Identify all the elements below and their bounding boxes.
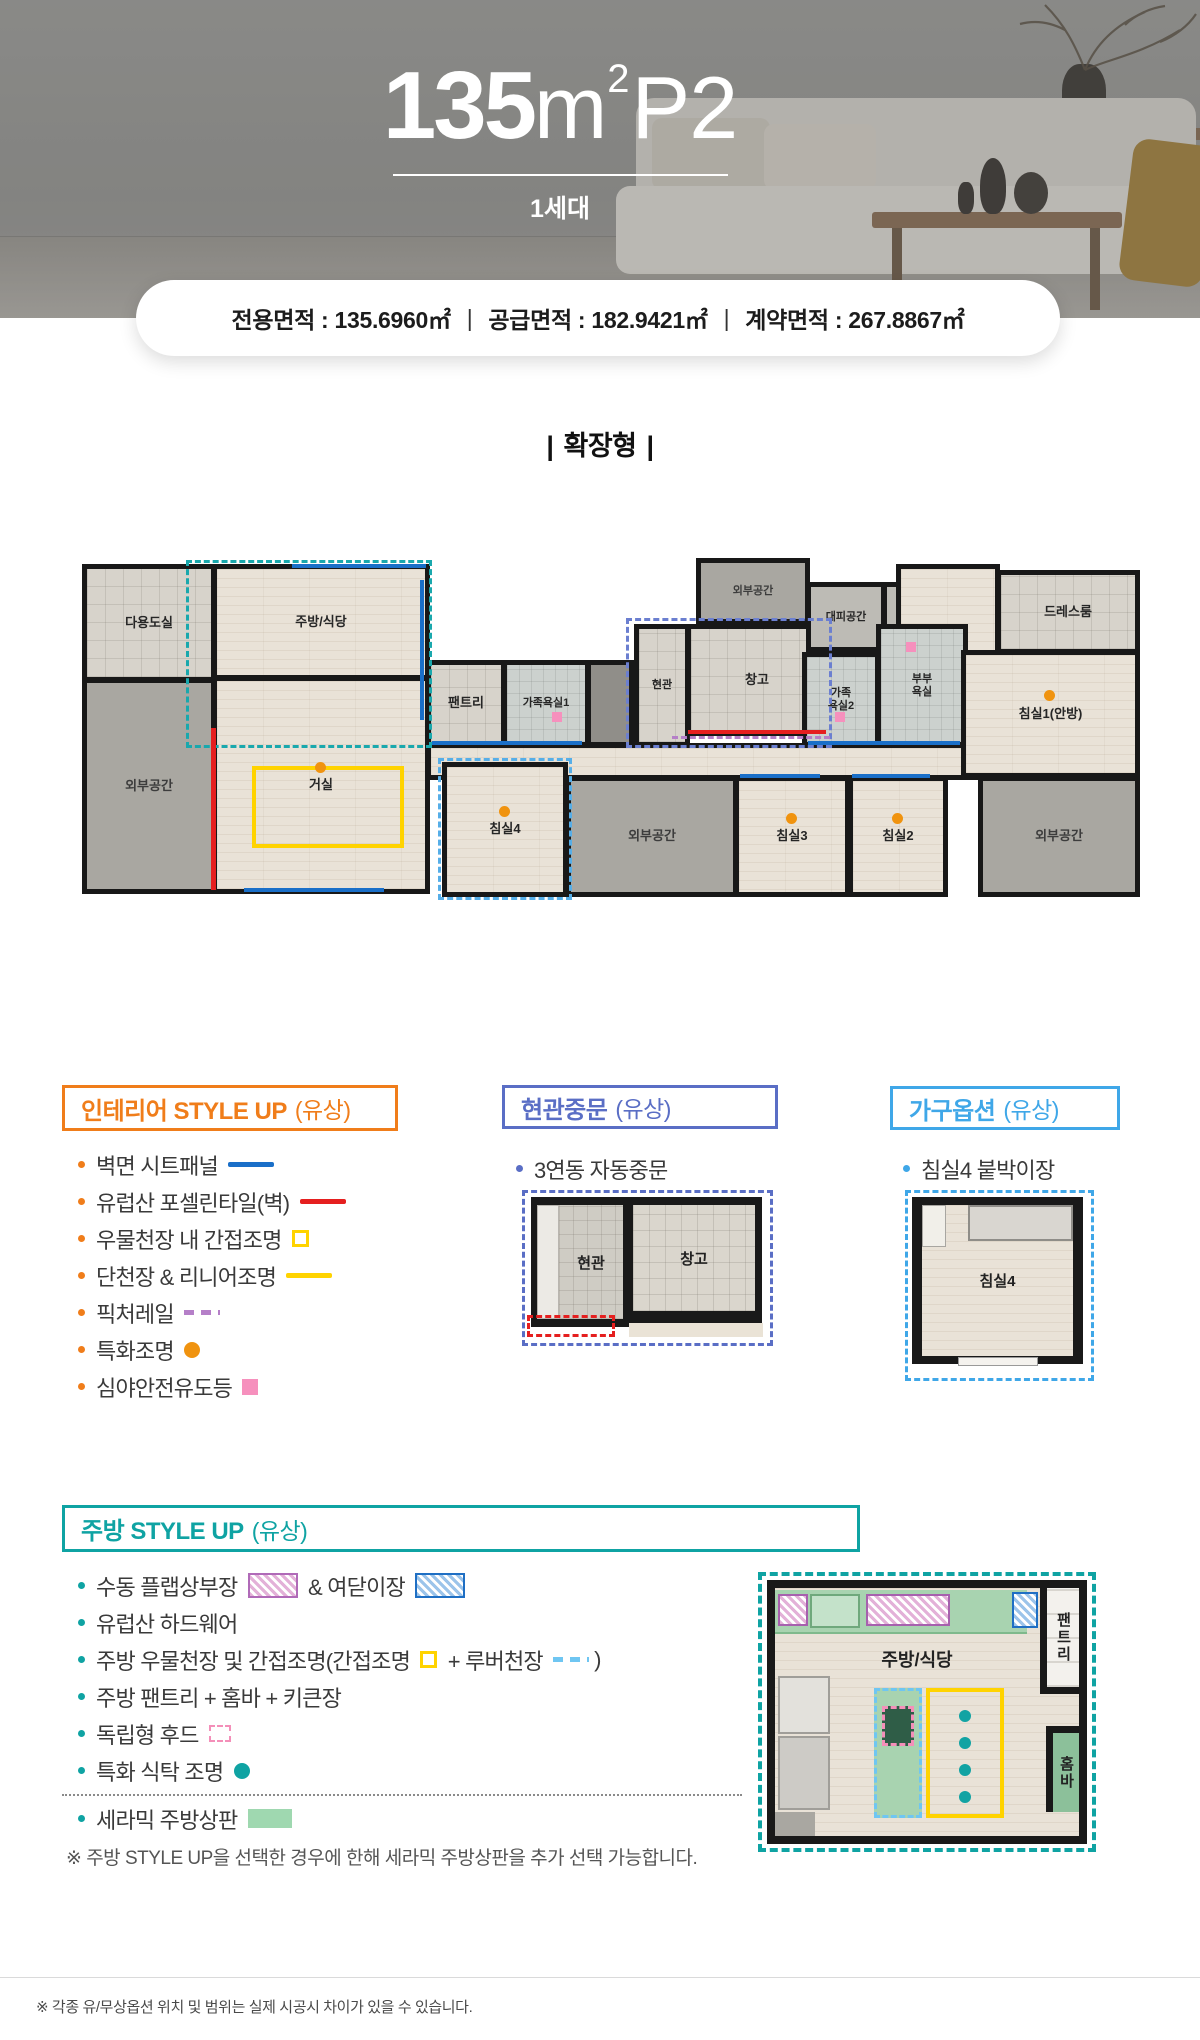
bullet-icon [903,1165,910,1172]
unit-size: 135 [383,52,534,159]
legend-swatch-sq-outline [420,1651,437,1668]
floorplan: 다용도실외부공간주방/식당거실팬트리가족욕실1현관창고외부공간대피공간실외기실부… [60,560,1140,900]
legend-text: & 여닫이장 [303,1570,411,1602]
legend-item: 특화조명 [78,1331,351,1368]
legend-text: 주방 팬트리 + 홈바 + 키큰장 [96,1681,341,1713]
room-bedroom3: 침실3 [736,778,848,895]
legend-swatch-sq-outline [292,1230,309,1247]
legend-door: 3연동 자동중문 [516,1150,667,1187]
unit-unit: m [534,58,605,157]
legend-item: 침실4 붙박이장 [903,1150,1054,1187]
room-dressroom-label: 드레스룸 [1044,605,1092,620]
bullet-icon [516,1165,523,1172]
room-bedroom3-label: 침실3 [776,829,807,844]
legend-swatch-circle [234,1763,250,1779]
mini-storage-room: 창고 [633,1205,755,1311]
room-entry: 현관 [636,626,688,745]
room-familybath1-label: 가족욕실1 [523,697,570,710]
section-title-paren: (유상) [615,1090,671,1124]
legend-item: 심야안전유도등 [78,1368,351,1405]
legend-item: 우물천장 내 간접조명 [78,1220,351,1257]
hinged-cabinet-swatch [1012,1592,1038,1628]
section-header-kitchen: 주방 STYLE UP (유상) [62,1505,860,1552]
legend-item: 수동 플랩상부장 & 여닫이장 [78,1567,601,1604]
dining-light-dot [959,1791,971,1803]
auto-door-position-marker [527,1315,615,1337]
room-shelter: 대피공간 [808,584,884,650]
household-count: 1세대 [0,189,1120,225]
area-item: 전용면적 : 135.6960㎡ [231,301,450,335]
mini-bedroom4-label: 침실4 [980,1270,1016,1291]
kitchen-refrigerator [778,1736,830,1810]
bullet-icon [78,1198,85,1205]
section-title-paren: (유상) [295,1091,351,1125]
bullet-icon [78,1161,85,1168]
room-bedroom4-label: 침실4 [489,822,520,837]
room-living-label: 거실 [309,778,333,793]
section-header-door: 현관중문 (유상) [502,1085,778,1129]
room-entry-label: 현관 [652,679,672,692]
legend-item: 유럽산 포셀린타일(벽) [78,1183,351,1220]
legend-text: 단천장 & 리니어조명 [96,1260,281,1292]
legend-text: 주방 우물천장 및 간접조명(간접조명 [96,1644,415,1676]
unit-title: 135m2P2 [0,58,1120,154]
mini-entry-room: 현관 [559,1205,623,1319]
room-kitchen-label: 주방/식당 [295,615,346,630]
legend-item: 픽처레일 [78,1294,351,1331]
legend-text: 세라믹 주방상판 [96,1803,243,1835]
room-familybath1: 가족욕실1 [504,662,588,745]
section-title: 현관중문 [521,1090,607,1125]
legend-swatch-line [286,1273,332,1278]
room-bedroom2-label: 침실2 [882,829,913,844]
miniplan-entry-door: 현관 창고 [522,1190,773,1346]
miniplan-kitchen: 팬트리 홈바 주방/식당 [758,1572,1096,1852]
bullet-icon [78,1767,85,1774]
room-bedroom1: 침실1(안방) [963,652,1138,776]
legend-text: 수동 플랩상부장 [96,1570,243,1602]
legend-swatch-rect [248,1809,292,1828]
legend-item: 주방 우물천장 및 간접조명(간접조명 + 루버천장 ) [78,1641,601,1678]
bullet-icon [78,1272,85,1279]
section-title: 주방 STYLE UP [81,1511,244,1546]
footer-divider [0,1977,1200,1978]
bullet-icon [78,1383,85,1390]
legend-text: 3연동 자동중문 [534,1153,667,1185]
independent-hood-marker [882,1706,914,1746]
legend-swatch-dashes [553,1657,589,1662]
dining-light-dot [959,1737,971,1749]
flap-cabinet-swatch [866,1594,950,1626]
legend-text: 우물천장 내 간접조명 [96,1223,287,1255]
room-bedroom1-label: 침실1(안방) [1019,707,1083,722]
legend-swatch-hatch [415,1573,465,1598]
legend-text: 유럽산 하드웨어 [96,1607,237,1639]
shoe-cabinet [537,1205,559,1319]
brochure-page: 135m2P2 1세대 전용면적 : 135.6960㎡|공급면적 : 182.… [0,0,1200,2040]
room-familybath2-label: 가족 욕실2 [828,687,854,712]
heading-bar: | [647,431,654,461]
section-title-paren: (유상) [1003,1091,1059,1125]
legend-item: 단천장 & 리니어조명 [78,1257,351,1294]
legend-swatch-circle [184,1342,200,1358]
mini-homebar-label: 홈바 [1053,1733,1079,1812]
dining-light-dot [959,1764,971,1776]
legend-item: 벽면 시트패널 [78,1146,351,1183]
room-familybath2: 가족 욕실2 [804,654,878,745]
legend-text: 독립형 후드 [96,1718,204,1750]
bullet-icon [78,1730,85,1737]
room-bedroom2: 침실2 [850,778,946,895]
legend-text: 침실4 붙박이장 [921,1153,1054,1185]
dining-light-dot [959,1710,971,1722]
mini-kitchen-label: 주방/식당 [842,1646,992,1672]
unit-title-block: 135m2P2 1세대 [0,58,1120,225]
room-duct [588,662,632,745]
area-item: 공급면적 : 182.9421㎡ [488,301,707,335]
legend-text: 특화조명 [96,1334,179,1366]
legend-swatch-line [228,1162,274,1167]
bullet-icon [78,1582,85,1589]
flap-cabinet-swatch [778,1594,808,1626]
heading-bar: | [546,431,553,461]
room-living: 거실 [214,678,428,892]
mini-exterior [775,1812,815,1836]
legend-item: 3연동 자동중문 [516,1150,667,1187]
section-title: 인테리어 STYLE UP [81,1091,287,1126]
bullet-icon [78,1815,85,1822]
bullet-icon [78,1346,85,1353]
kitchen-note: ※ 주방 STYLE UP을 선택한 경우에 한해 세라믹 주방상판을 추가 선… [66,1843,697,1870]
kitchen-sink [810,1594,860,1628]
room-ext-top-label: 외부공간 [733,585,773,598]
section-header-furniture: 가구옵션 (유상) [890,1086,1120,1130]
room-dressroom: 드레스룸 [998,572,1138,652]
pill-separator: | [724,305,730,332]
mini-window [958,1357,1038,1366]
legend-swatch-dashes [184,1310,220,1315]
bullet-icon [78,1309,85,1316]
area-item: 계약면적 : 267.8867㎡ [745,301,964,335]
room-kitchen: 주방/식당 [214,566,428,678]
title-underline [393,174,728,176]
legend-furniture: 침실4 붙박이장 [903,1150,1054,1187]
room-masterbath: 부부 욕실 [878,626,966,745]
bullet-icon [78,1693,85,1700]
room-ext-bottom-mid: 외부공간 [568,778,736,895]
room-bedroom4: 침실4 [444,764,566,895]
plan-type-heading: |확장형| [0,424,1200,463]
legend-swatch-line [300,1199,346,1204]
room-masterbath-label: 부부 욕실 [912,673,932,698]
mini-door-leaf [922,1205,946,1247]
room-utility-label: 다용도실 [125,616,173,631]
mini-storage-label: 창고 [680,1248,708,1269]
room-ext-left-label: 외부공간 [125,779,173,794]
legend-text: 심야안전유도등 [96,1371,237,1403]
room-shelter-label: 대피공간 [826,611,866,624]
room-utility: 다용도실 [84,566,214,680]
bullet-icon [78,1619,85,1626]
room-pantry: 팬트리 [428,662,504,745]
mini-pantry-label: 팬트리 [1047,1588,1079,1687]
room-ext-left: 외부공간 [84,680,214,892]
section-title: 가구옵션 [909,1091,995,1126]
section-title-paren: (유상) [252,1512,308,1546]
heading-text: 확장형 [563,431,636,461]
miniplan-bedroom4: 침실4 [905,1190,1094,1381]
kitchen-dotted-divider [62,1794,742,1796]
mini-homebar: 홈바 [1046,1726,1079,1812]
legend-text: 유럽산 포셀린타일(벽) [96,1186,295,1218]
unit-sup: 2 [607,57,629,101]
legend-ceramic: 세라믹 주방상판 [78,1800,297,1837]
area-pill: 전용면적 : 135.6960㎡|공급면적 : 182.9421㎡|계약면적 :… [136,280,1060,356]
mini-floor-strip [629,1323,763,1337]
legend-swatch-square [242,1379,258,1395]
legend-item: 특화 식탁 조명 [78,1752,601,1789]
room-ext-top: 외부공간 [698,560,808,622]
room-ext-bottom-right: 외부공간 [980,778,1138,895]
legend-swatch-dash-square [209,1725,231,1742]
legend-text: + 루버천장 [442,1644,548,1676]
legend-text: 특화 식탁 조명 [96,1755,229,1787]
footer-note: ※ 각종 유/무상옵션 위치 및 범위는 실제 시공시 차이가 있을 수 있습니… [36,1996,472,2017]
room-ext-bottom-mid-label: 외부공간 [628,829,676,844]
mini-entry-label: 현관 [577,1252,605,1273]
pill-separator: | [467,305,473,332]
legend-item: 독립형 후드 [78,1715,601,1752]
legend-kitchen: 수동 플랩상부장 & 여닫이장 유럽산 하드웨어주방 우물천장 및 간접조명(간… [78,1567,601,1789]
kitchen-tall-cabinet [778,1676,830,1734]
legend-item: 세라믹 주방상판 [78,1800,297,1837]
mini-pantry: 팬트리 [1040,1588,1079,1694]
hero-photo: 135m2P2 1세대 [0,0,1200,318]
bullet-icon [78,1656,85,1663]
room-storage-label: 창고 [745,673,769,688]
legend-item: 유럽산 하드웨어 [78,1604,601,1641]
legend-item: 주방 팬트리 + 홈바 + 키큰장 [78,1678,601,1715]
legend-text: 벽면 시트패널 [96,1149,223,1181]
room-ext-bottom-right-label: 외부공간 [1035,829,1083,844]
unit-code: P2 [632,58,738,157]
bullet-icon [78,1235,85,1242]
legend-swatch-hatch [248,1573,298,1598]
legend-text: ) [594,1647,601,1673]
legend-interior: 벽면 시트패널 유럽산 포셀린타일(벽) 우물천장 내 간접조명 단천장 & 리… [78,1146,351,1405]
legend-text: 픽처레일 [96,1297,179,1329]
section-header-interior: 인테리어 STYLE UP (유상) [62,1085,398,1131]
built-in-wardrobe [968,1205,1073,1241]
room-pantry-label: 팬트리 [448,696,484,711]
